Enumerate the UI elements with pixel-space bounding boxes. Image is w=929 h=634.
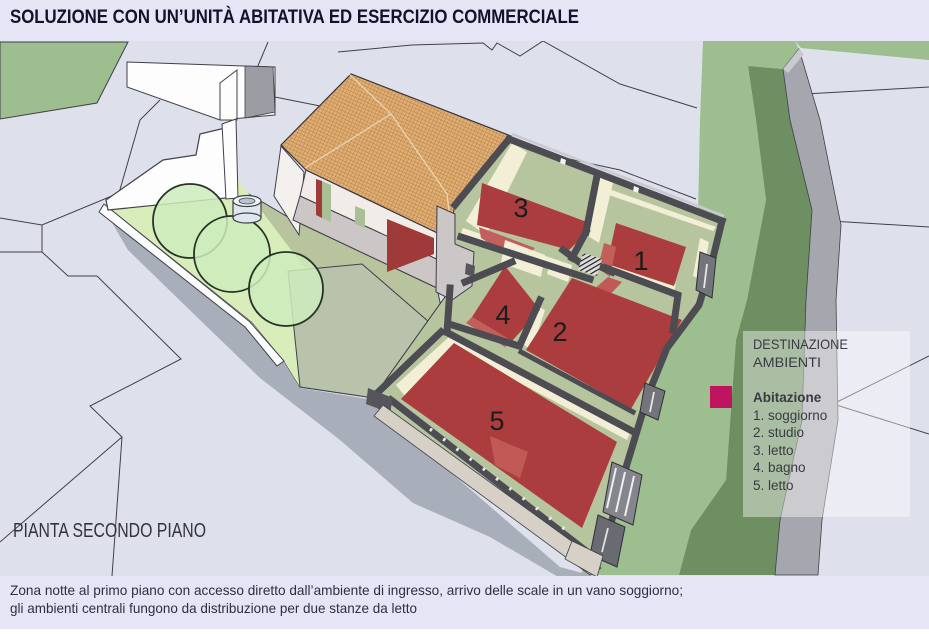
svg-text:2. studio: 2. studio [753,425,804,440]
svg-text:1. soggiorno: 1. soggiorno [753,408,827,423]
svg-text:5. letto: 5. letto [753,478,794,493]
svg-text:Abitazione: Abitazione [753,390,822,405]
svg-text:1: 1 [633,246,648,276]
svg-text:3: 3 [513,193,528,223]
svg-text:AMBIENTI: AMBIENTI [753,354,821,370]
svg-text:DESTINAZIONE: DESTINAZIONE [753,336,848,352]
svg-text:4: 4 [495,300,510,330]
svg-text:PIANTA SECONDO PIANO: PIANTA SECONDO PIANO [13,520,206,542]
svg-text:SOLUZIONE CON UN’UNITÀ ABITATI: SOLUZIONE CON UN’UNITÀ ABITATIVA ED ESER… [10,6,579,28]
svg-text:2: 2 [552,317,567,347]
svg-text:gli ambienti centrali fungono: gli ambienti centrali fungono da distrib… [10,601,417,616]
svg-text:3. letto: 3. letto [753,443,794,458]
svg-text:4. bagno: 4. bagno [753,460,806,475]
svg-text:5: 5 [489,406,504,436]
svg-text:Zona notte al primo piano con: Zona notte al primo piano con accesso di… [10,583,683,598]
